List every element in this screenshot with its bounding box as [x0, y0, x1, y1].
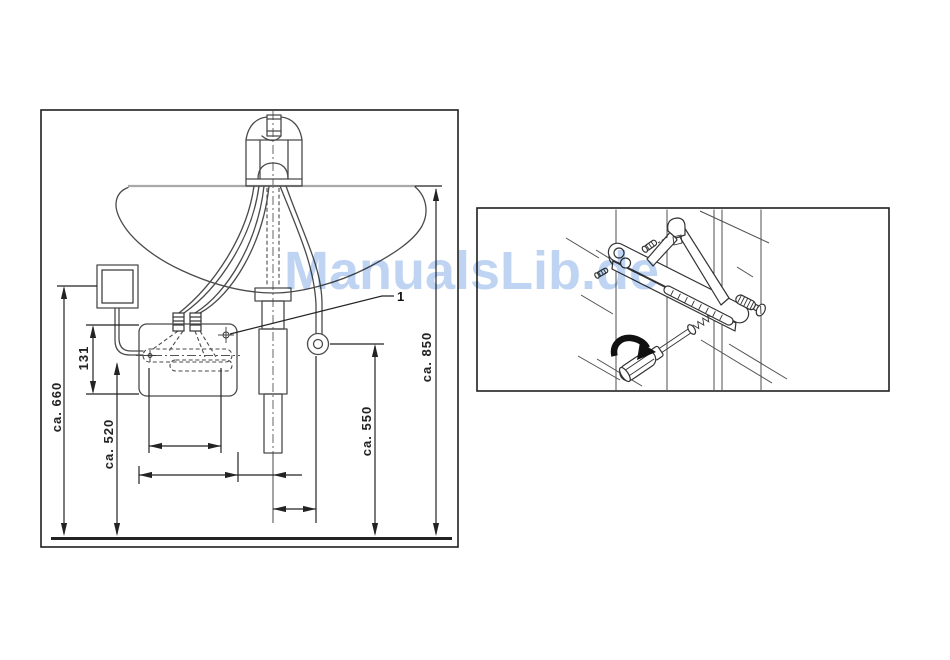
- bracket-bar: [608, 243, 748, 323]
- dim-label-overall-height: ca. 660: [49, 382, 64, 432]
- dim-label-connection-height: ca. 520: [101, 419, 116, 469]
- dimension-overall-height: ca. 660: [49, 286, 97, 536]
- manual-diagram-svg: ca. 660 131 ca. 520 ca. 550: [0, 0, 950, 660]
- dimension-heater-height: 131: [76, 325, 139, 394]
- screw-collar: [686, 323, 697, 335]
- dimension-drain-offset: [273, 356, 316, 523]
- mounting-bracket: [608, 218, 748, 331]
- washbasin: [116, 186, 426, 293]
- dim-label-rim-height: ca. 850: [419, 332, 434, 382]
- small-screw-icon: [594, 267, 609, 279]
- dimension-connection-height: ca. 520: [101, 362, 120, 536]
- mounting-point-cross-icon: [218, 327, 234, 343]
- water-heater-unit: [136, 324, 240, 396]
- dimension-element-width: [149, 368, 221, 453]
- figure-border-left: [41, 110, 458, 547]
- callout-number: 1: [397, 289, 404, 304]
- supply-hoses: [173, 186, 269, 331]
- dimension-outlet-height: ca. 550: [330, 344, 384, 536]
- element-cross-icon: [144, 350, 156, 362]
- part-callout: 1: [230, 289, 404, 334]
- installation-figure: ca. 660 131 ca. 520 ca. 550: [41, 110, 458, 547]
- hose-fittings: [173, 313, 201, 331]
- control-box: [97, 265, 143, 355]
- dim-label-outlet-height: ca. 550: [359, 406, 374, 456]
- manual-page: ca. 660 131 ca. 520 ca. 550: [0, 0, 950, 660]
- dimension-rim-height: ca. 850: [415, 186, 442, 536]
- screw-thread: [693, 314, 713, 330]
- dim-label-heater-height: 131: [76, 346, 91, 371]
- floor-line: [51, 537, 452, 540]
- faucet: [246, 115, 302, 186]
- screwdriver: [617, 310, 716, 384]
- bracket-figure: [477, 208, 889, 391]
- callout-leader-line: [230, 296, 394, 334]
- dimension-heater-width: [139, 452, 302, 484]
